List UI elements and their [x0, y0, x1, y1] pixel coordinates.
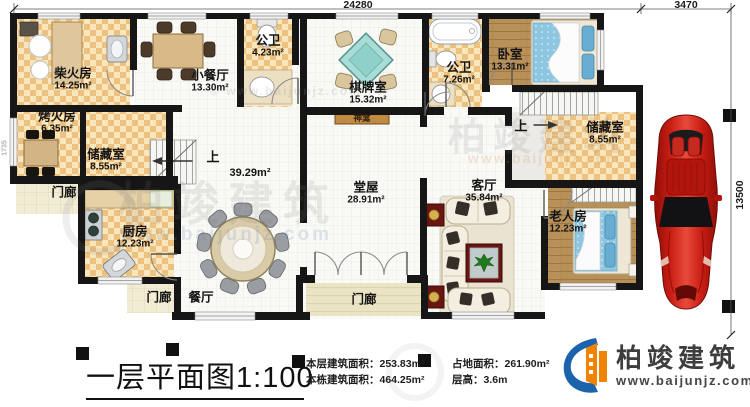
room-label-bath-main: 公卫7.26m² — [443, 60, 475, 85]
logo-mark-icon — [558, 334, 612, 396]
window — [10, 118, 17, 166]
stove-pot-small — [31, 61, 49, 79]
room-label-small-dining: 小餐厅13.30m² — [191, 68, 229, 93]
area-label-stair-hall: 39.29m² — [230, 167, 271, 179]
floor-plan-page: { "title": { "text": "一层平面图", "scale": "… — [0, 0, 750, 407]
car-windshield — [659, 197, 713, 227]
window — [148, 13, 206, 19]
room-label-kitchen: 厨房12.23m² — [116, 224, 153, 249]
porch-label: 门廊 — [51, 182, 76, 201]
stats-column-2: 占地面积：261.90m² 层高：3.6m — [452, 356, 549, 388]
room-label-firewood: 柴火房14.25m² — [54, 66, 92, 91]
wash-basin — [432, 85, 450, 103]
room-label-storage-left: 储藏室8.55m² — [87, 147, 125, 172]
dimension-side: 1735 — [2, 140, 9, 156]
car-mirror — [714, 195, 722, 201]
window — [432, 13, 478, 19]
pillow — [582, 54, 594, 79]
window — [560, 283, 616, 290]
stat-floor-area: 本层建筑面积：253.83m² — [306, 356, 424, 372]
room-label-living: 客厅35.84m² — [465, 178, 502, 203]
room-label-bakehouse: 烤火房6.35m² — [38, 109, 76, 134]
window — [195, 312, 255, 320]
room-label-bath-small: 公卫4.23m² — [252, 33, 284, 58]
column — [723, 109, 736, 122]
title-block: 一层平面图1:100 — [86, 354, 314, 400]
porch-label: 门廊 — [351, 289, 376, 308]
room-label-main-hall: 堂屋28.91m² — [347, 180, 384, 205]
logo-website-text: www.baijunjz.com — [616, 373, 750, 388]
nightstand — [629, 264, 637, 276]
brand-logo: 柏竣建筑 www.baijunjz.com — [558, 334, 750, 396]
fridge — [150, 191, 172, 207]
window — [250, 13, 288, 19]
window — [336, 13, 398, 19]
window — [98, 277, 142, 284]
title-underline — [86, 398, 304, 400]
car — [650, 115, 722, 309]
window — [540, 13, 590, 19]
stairs-up-label: 上 — [206, 147, 219, 166]
room-label-mahjong: 棋牌室15.32m² — [349, 80, 387, 105]
shrine-label: 神龛 — [353, 112, 370, 124]
toilet-tank — [429, 51, 436, 67]
stats-column-1: 本层建筑面积：253.83m² 本栋建筑面积：464.25m² — [306, 356, 424, 388]
stat-land-area: 占地面积：261.90m² — [452, 356, 549, 372]
stairs-up-label: 上 — [514, 116, 527, 135]
pillow — [582, 26, 594, 51]
bedroom-bed — [531, 20, 599, 85]
scale-label: 1:100 — [236, 362, 314, 394]
car-mirror — [650, 195, 658, 201]
car-seat — [688, 137, 700, 156]
pillow — [605, 215, 615, 239]
room-label-bedroom: 卧室13.31m² — [491, 47, 528, 72]
car-seat — [672, 137, 684, 156]
room-label-elder: 老人房12.23m² — [549, 209, 587, 234]
stat-floor-height: 层高：3.6m — [452, 372, 549, 388]
sofa-bottom — [448, 288, 510, 314]
porch-label: 门廊 — [146, 287, 171, 306]
page-title: 一层平面图 — [86, 362, 236, 394]
window — [597, 30, 604, 70]
column — [722, 300, 735, 313]
hearth — [20, 22, 38, 36]
wash-basin — [250, 77, 274, 97]
window — [452, 312, 514, 319]
pillow — [605, 243, 615, 267]
dimension-depth: 13500 — [734, 180, 746, 209]
room-label-dining: 餐厅 — [188, 287, 213, 306]
room-label-storage-right: 储藏室8.55m² — [586, 120, 624, 145]
stat-building-area: 本栋建筑面积：464.25m² — [306, 372, 424, 388]
logo-brand-text: 柏竣建筑 — [616, 343, 750, 373]
dimension-width-main: 24280 — [343, 0, 372, 11]
stove-pot-large — [29, 35, 51, 57]
window — [38, 13, 80, 19]
stairs-upper-flight — [572, 186, 636, 202]
sofa-set — [440, 196, 514, 316]
nightstand — [629, 206, 637, 218]
dimension-width-carport: 3470 — [674, 0, 697, 11]
